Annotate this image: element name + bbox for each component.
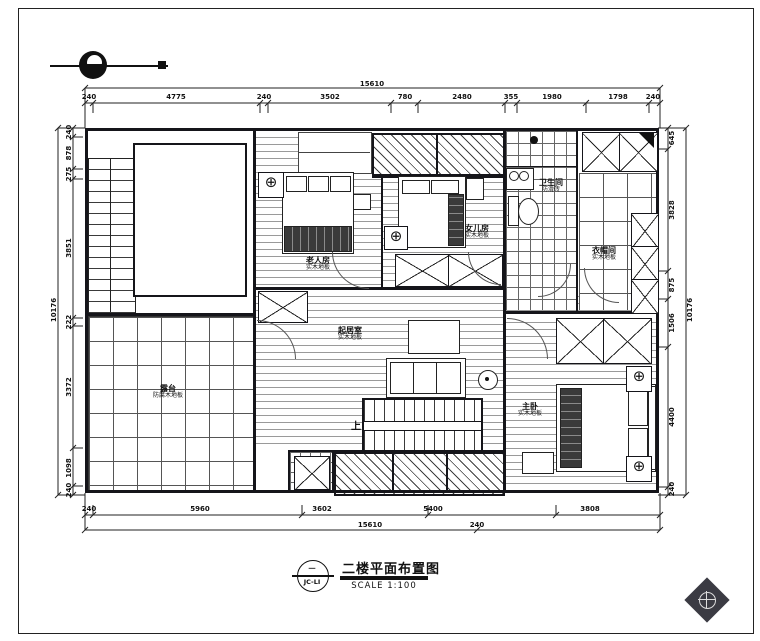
closet-shelf-line	[298, 152, 370, 153]
dim: 3828	[668, 200, 676, 219]
cabinet	[294, 456, 330, 490]
pillow	[308, 176, 329, 192]
drawing-title: 二楼平面布置图	[342, 558, 440, 577]
sheet-tag-top: 一	[309, 564, 316, 574]
dim: 875	[668, 278, 676, 293]
basin-bowl	[509, 171, 519, 181]
dim: 878	[65, 146, 73, 161]
room-label-elder: 老人房实木地板	[306, 256, 330, 272]
nightstand	[466, 178, 484, 200]
cabinet	[258, 291, 308, 323]
dim: 240	[470, 521, 485, 529]
wardrobe	[603, 318, 652, 364]
dim: 3372	[65, 377, 73, 396]
drawing-scale: SCALE 1:100	[351, 581, 416, 591]
title-block: 一 JC-LI 二楼平面布置图 SCALE 1:100	[280, 550, 480, 595]
dim: 4400	[668, 407, 676, 426]
room-label-daughter: 女儿房实木地板	[465, 224, 489, 240]
dim-left-overall: 10176	[50, 298, 58, 322]
dim: 5400	[423, 505, 442, 513]
dim: 3851	[65, 238, 73, 257]
dim: 240	[65, 483, 73, 498]
dim: 1506	[668, 313, 676, 332]
ceiling-lamp-icon: ⊕	[384, 226, 408, 250]
stair-up-label: 上	[351, 418, 361, 433]
dim: 3602	[312, 505, 331, 513]
sofa-seat	[436, 362, 461, 394]
dim: 1098	[65, 458, 73, 477]
room-label-family: 起居室实木地板	[338, 326, 362, 342]
dim: 240	[646, 93, 661, 101]
wall	[332, 452, 334, 493]
dim: 4775	[166, 93, 185, 101]
dim: 645	[668, 131, 676, 146]
wall	[85, 313, 256, 316]
elder-bed-duvet	[284, 226, 352, 252]
wall	[576, 128, 578, 312]
company-logo-icon	[685, 578, 730, 623]
shower-head-icon	[530, 136, 538, 144]
round-table-dot	[485, 377, 489, 381]
dim: 240	[82, 93, 97, 101]
pillow	[431, 180, 459, 194]
dim: 275	[65, 167, 73, 182]
wardrobe	[556, 318, 605, 364]
wall	[288, 450, 290, 493]
side-table	[353, 194, 371, 210]
floor-plan-sheet: ⊕ ⊕ 上 ⊕ ⊕ 老人房实木地板	[0, 0, 760, 641]
sheet-tag-bottom: JC-LI	[304, 578, 321, 586]
stair-landing	[364, 421, 481, 431]
master-bed-duvet	[560, 388, 582, 468]
daughter-bed-duvet	[448, 194, 464, 246]
wall	[253, 287, 505, 290]
dim: 5960	[190, 505, 209, 513]
pillow	[330, 176, 351, 192]
nightstand	[522, 452, 554, 474]
wardrobe	[395, 254, 450, 287]
ceiling-lamp-icon: ⊕	[258, 172, 284, 198]
dim: 240	[65, 125, 73, 140]
ceiling-lamp-icon: ⊕	[626, 366, 652, 392]
dim-right-overall: 10176	[686, 298, 694, 322]
title-underline	[340, 576, 428, 580]
wardrobe	[582, 132, 621, 172]
dim-top-overall: 15610	[360, 80, 384, 88]
dim: 2480	[452, 93, 471, 101]
pillow	[286, 176, 307, 192]
dim: 1798	[608, 93, 627, 101]
pillow	[628, 390, 648, 426]
sofa-seat	[413, 362, 438, 394]
wardrobe	[631, 279, 659, 314]
dim: 240	[668, 482, 676, 497]
sofa-seat	[390, 362, 415, 394]
wardrobe	[631, 246, 659, 281]
corner-fill	[639, 133, 654, 148]
dim: 1980	[542, 93, 561, 101]
dim: 3808	[580, 505, 599, 513]
toilet-bowl	[518, 198, 539, 225]
dim: 222	[65, 315, 73, 330]
ceiling-lamp-icon: ⊕	[626, 456, 652, 482]
coffee-table	[408, 320, 460, 354]
room-label-master: 主卧实木地板	[518, 402, 542, 418]
dim: 355	[504, 93, 519, 101]
room-label-bath: 卫生间防滑砖	[539, 178, 563, 194]
sheet-tag-divider	[292, 575, 334, 577]
room-label-terrace: 露台防腐木地板	[153, 384, 183, 400]
shower-partition	[506, 166, 576, 167]
wall	[253, 128, 256, 493]
room-label-cloak: 衣帽间实木地板	[592, 246, 616, 262]
dim: 3502	[320, 93, 339, 101]
wardrobe	[631, 213, 659, 248]
closet	[298, 132, 372, 174]
dim-bottom-overall: 15610	[358, 521, 382, 529]
dim: 240	[82, 505, 97, 513]
wall	[381, 174, 383, 289]
basin-bowl	[519, 171, 529, 181]
pillow	[402, 180, 430, 194]
dim: 780	[398, 93, 413, 101]
dim: 240	[257, 93, 272, 101]
